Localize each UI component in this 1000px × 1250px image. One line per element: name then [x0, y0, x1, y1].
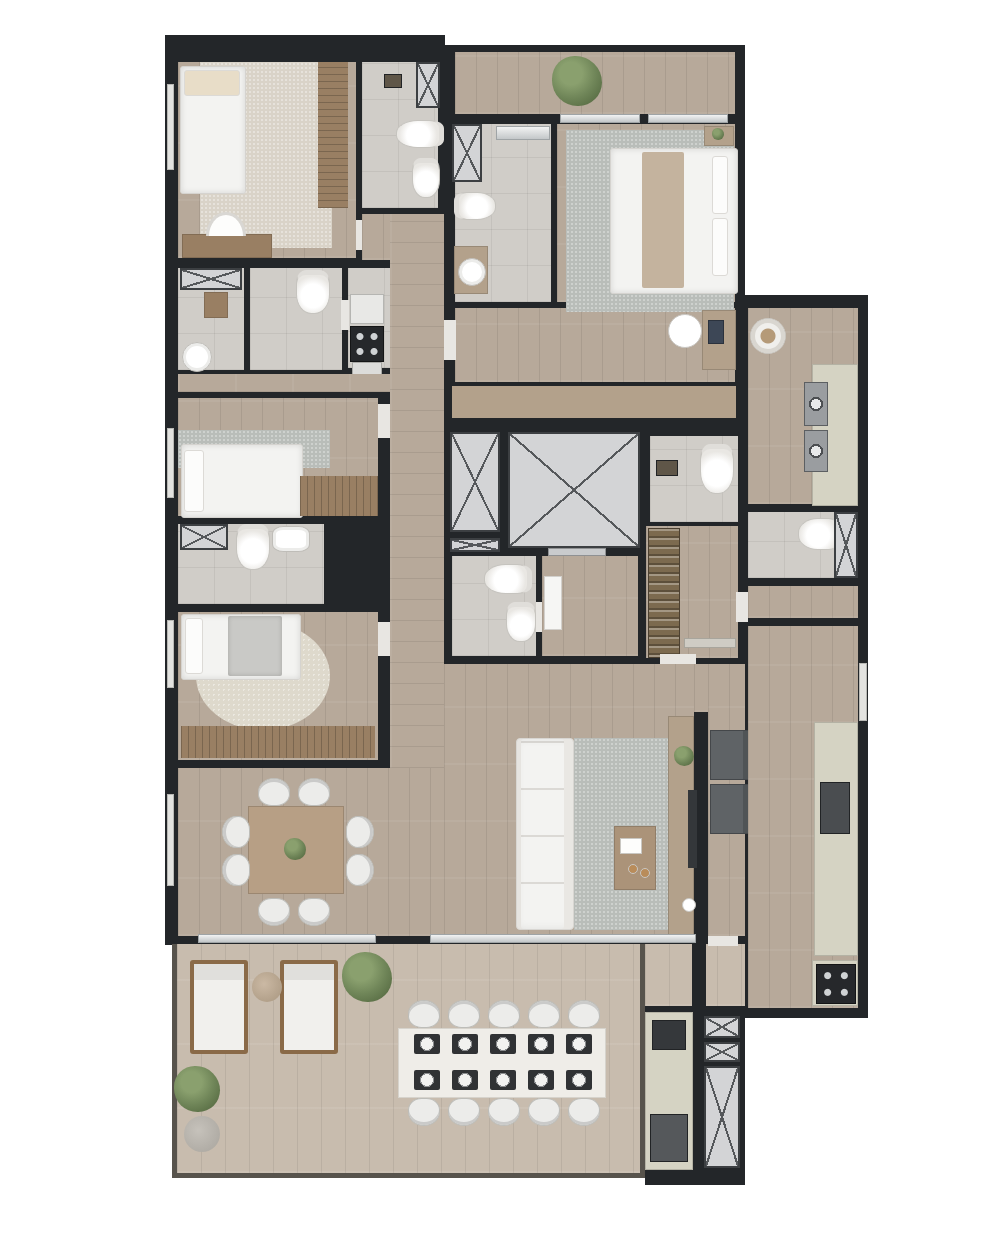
hall-toilet — [484, 564, 532, 594]
bedroom2-pillow — [184, 450, 204, 512]
bathroom1-duct-shaft — [416, 62, 440, 108]
dining-window — [167, 794, 174, 886]
master-door-threshold — [444, 320, 456, 360]
bedroom1-door-threshold — [356, 220, 362, 250]
kitchenette-door-threshold — [341, 300, 349, 330]
bathroom2-duct-shaft — [180, 524, 228, 550]
floor-plan-canvas — [0, 0, 1000, 1250]
master-bath-duct-shaft — [452, 124, 482, 182]
laundry-pouf — [750, 318, 786, 354]
terrace-chair — [568, 1000, 600, 1028]
kitchenette-stove — [350, 326, 384, 362]
duct-shaft-thin — [450, 538, 500, 552]
terrace-stone-ottoman — [184, 1116, 220, 1152]
kitchenette-fridge — [350, 294, 384, 324]
master-nightstand-plant — [712, 128, 724, 140]
wine-cellar-door — [660, 654, 696, 664]
terrace-sliding-door — [198, 934, 376, 943]
terrace-duct-shaft-large — [704, 1066, 740, 1168]
bedroom2-window — [167, 428, 174, 498]
coffee-table-cup — [640, 868, 650, 878]
service-toilet — [296, 270, 330, 314]
living-pass-top — [694, 664, 708, 712]
kitchen-cooktop — [816, 964, 856, 1004]
place-setting — [566, 1070, 592, 1090]
wine-rack — [648, 528, 680, 658]
lounger-side-table — [252, 972, 282, 1002]
master-wardrobe — [452, 386, 736, 418]
master-bed-runner — [642, 152, 684, 288]
bedroom2-wardrobe — [300, 476, 378, 516]
terrace-sliding-door — [430, 934, 696, 943]
dining-chair — [222, 816, 250, 848]
terrace-chair — [448, 1098, 480, 1126]
bathroom1-vanity — [384, 74, 402, 88]
bathroom2-toilet — [236, 524, 270, 570]
dining-chair — [258, 778, 290, 806]
armchair — [710, 730, 750, 780]
terrace-chair — [568, 1098, 600, 1126]
bathroom1-bidet — [412, 158, 440, 198]
bathroom2-sink — [272, 526, 310, 552]
washing-machine — [804, 382, 828, 426]
place-setting — [490, 1070, 516, 1090]
place-setting — [452, 1070, 478, 1090]
vestibule-side-door — [736, 592, 748, 622]
terrace-chair — [528, 1000, 560, 1028]
right-hall-floor — [748, 586, 858, 618]
master-shower-glass — [496, 126, 550, 140]
terrace-plant — [342, 952, 392, 1002]
dining-chair — [346, 816, 374, 848]
wine-shelf — [684, 638, 736, 648]
place-setting — [452, 1034, 478, 1054]
kitchen-terrace-threshold — [708, 936, 738, 946]
elevator-shaft-small — [450, 432, 500, 532]
wall-terrace-divider — [692, 944, 706, 1008]
bedroom3-door-threshold — [378, 622, 390, 656]
sun-lounger — [190, 960, 248, 1054]
bathroom1-toilet — [396, 120, 444, 148]
master-pillow — [712, 218, 728, 276]
terrace-duct-shaft — [704, 1042, 740, 1062]
master-sink — [458, 258, 486, 286]
bedroom3-wardrobe — [181, 726, 375, 758]
dining-chair — [298, 778, 330, 806]
kitchen-island — [814, 722, 858, 956]
console-plant — [674, 746, 694, 766]
kitchen-window — [859, 663, 867, 721]
service-duct-shaft — [180, 268, 242, 290]
master-window-1 — [560, 114, 640, 123]
console-side-dot — [682, 898, 696, 912]
kitchen-sink — [820, 782, 850, 834]
washing-machine — [804, 430, 828, 472]
place-setting — [528, 1070, 554, 1090]
terrace-chair — [528, 1098, 560, 1126]
bedroom3-blanket — [228, 616, 282, 676]
elevator-shaft-large — [508, 432, 640, 548]
hall-bidet — [506, 602, 536, 642]
terrace-plant — [174, 1066, 220, 1112]
dining-chair — [222, 854, 250, 886]
bedroom2-door-threshold — [378, 404, 390, 438]
terrace-chair — [488, 1098, 520, 1126]
dining-chair — [346, 854, 374, 886]
terrace-chair — [448, 1000, 480, 1028]
elevator-door — [548, 548, 606, 556]
bedroom1-window — [167, 84, 174, 170]
sun-lounger — [280, 960, 338, 1054]
tv — [688, 790, 697, 868]
place-setting — [566, 1034, 592, 1054]
place-setting — [490, 1034, 516, 1054]
bedroom1-wardrobe — [318, 62, 348, 208]
master-desk-chair — [668, 314, 702, 348]
coffee-table-book — [620, 838, 642, 854]
grill-station — [650, 1114, 688, 1162]
powder-vanity — [656, 460, 678, 476]
laundry-duct-shaft — [834, 512, 858, 578]
bedroom1-desk — [182, 234, 272, 258]
hallway-floor — [390, 214, 444, 768]
terrace-chair — [408, 1000, 440, 1028]
master-laptop — [708, 320, 724, 344]
dining-chair — [258, 898, 290, 926]
powder-toilet — [700, 444, 734, 494]
service-bench — [204, 292, 228, 318]
place-setting — [528, 1034, 554, 1054]
master-toilet — [454, 192, 496, 220]
dining-table-plant — [284, 838, 306, 860]
coffee-table-cup — [628, 864, 638, 874]
terrace-duct-shaft — [704, 1016, 740, 1038]
place-setting — [414, 1034, 440, 1054]
grill — [652, 1020, 686, 1050]
terrace-chair — [488, 1000, 520, 1028]
bedroom1-pillow — [184, 70, 240, 96]
service-hall-floor — [178, 374, 390, 392]
master-window-2 — [648, 114, 728, 123]
bedroom3-window — [167, 620, 174, 688]
master-pillow — [712, 156, 728, 214]
living-sofa — [516, 738, 574, 930]
dining-chair — [298, 898, 330, 926]
bedroom3-pillow — [185, 618, 203, 674]
place-setting — [414, 1070, 440, 1090]
terrace-chair — [408, 1098, 440, 1126]
service-sink — [182, 342, 212, 372]
vestibule-bench — [544, 576, 562, 630]
armchair — [710, 784, 750, 834]
balcony-plant — [552, 56, 602, 106]
coffee-table — [614, 826, 656, 890]
